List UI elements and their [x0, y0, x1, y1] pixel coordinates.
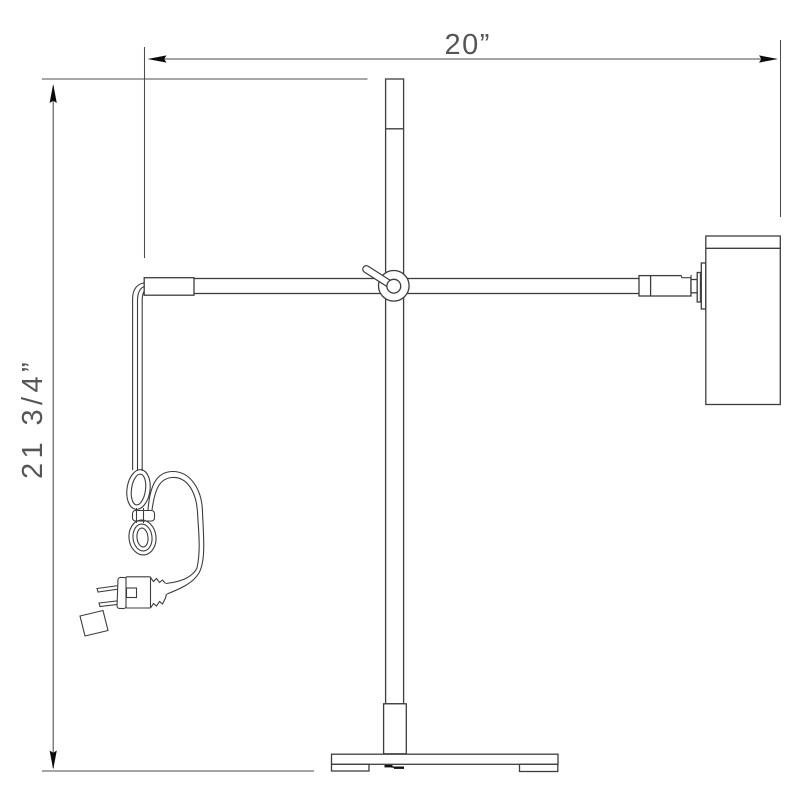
svg-text:20”: 20”: [445, 29, 491, 61]
svg-text:21 3/4”: 21 3/4”: [17, 358, 49, 479]
